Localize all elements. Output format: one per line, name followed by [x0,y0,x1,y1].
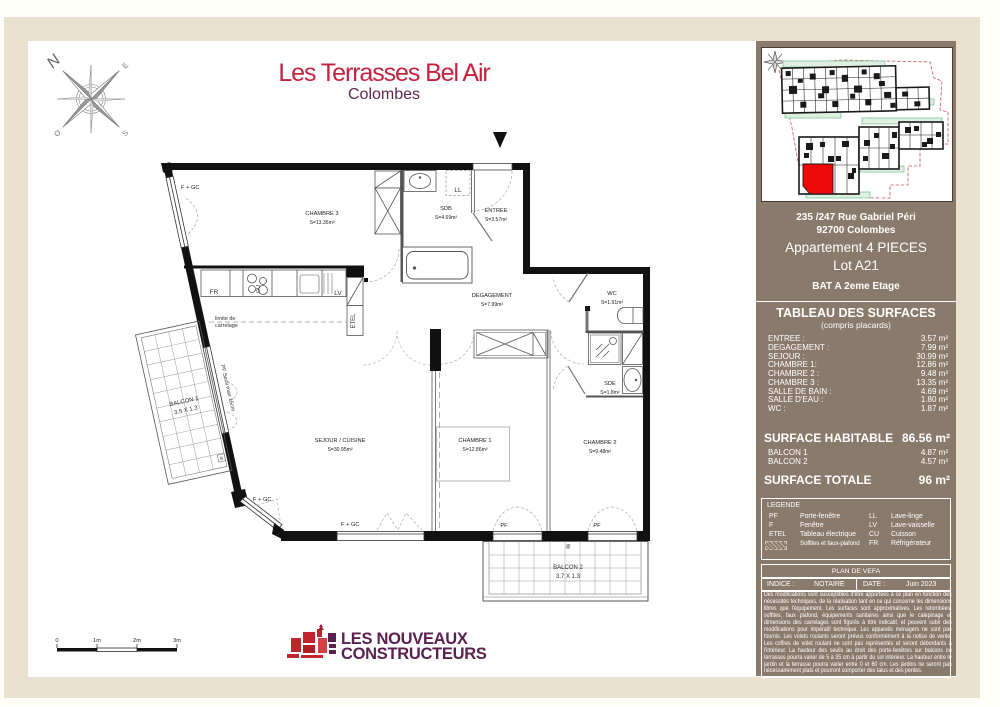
svg-text:S=1.8m²: S=1.8m² [600,390,620,396]
svg-text:DEGAGEMENT: DEGAGEMENT [472,293,513,299]
svg-text:1m: 1m [93,638,101,644]
svg-text:S=30.95m²: S=30.95m² [327,447,352,453]
svg-text:S=3.57m²: S=3.57m² [485,217,508,223]
svg-text:3m: 3m [173,638,181,644]
svg-text:PF: PF [593,523,601,529]
svg-text:S: S [120,128,130,138]
svg-text:3.7 X 1.3: 3.7 X 1.3 [556,574,581,580]
svg-text:S=9.48m²: S=9.48m² [589,449,612,455]
svg-text:@: @ [565,544,570,550]
svg-text:FR: FR [210,289,219,296]
svg-text:F + GC: F + GC [253,497,272,503]
svg-text:0: 0 [55,638,58,644]
svg-text:ETEL: ETEL [351,313,357,329]
svg-text:B: B [220,456,224,462]
svg-text:WC: WC [607,291,616,297]
svg-text:F + GC: F + GC [341,522,360,528]
svg-text:S=4.69m²: S=4.69m² [435,215,458,221]
svg-text:OU: OU [256,285,262,293]
svg-text:BALCON 2: BALCON 2 [553,565,583,571]
svg-text:N: N [44,51,65,72]
svg-text:SEJOUR / CUISINE: SEJOUR / CUISINE [315,438,366,444]
svg-text:O: O [52,128,63,139]
svg-text:PF: PF [500,523,508,529]
svg-text:carrelage: carrelage [215,323,238,329]
svg-text:F + GC: F + GC [181,185,200,191]
svg-text:LV: LV [334,290,342,297]
svg-text:ENTREE: ENTREE [484,208,507,214]
svg-text:limite de: limite de [215,316,235,322]
svg-text:2m: 2m [133,638,141,644]
svg-text:E: E [120,60,130,70]
svg-text:SDB: SDB [440,206,452,212]
svg-text:S=1.91m²: S=1.91m² [601,300,624,306]
svg-text:CHAMBRE 1: CHAMBRE 1 [458,438,491,444]
svg-text:3.5 X 1.3: 3.5 X 1.3 [174,405,199,416]
svg-text:LL: LL [454,187,462,194]
svg-text:CHAMBRE 3: CHAMBRE 3 [305,211,338,217]
svg-text:SDE: SDE [604,381,616,387]
svg-text:CONSTRUCTEURS: CONSTRUCTEURS [341,645,487,663]
svg-text:S=12.86m²: S=12.86m² [462,447,487,453]
svg-text:S=7.99m²: S=7.99m² [481,302,504,308]
svg-text:S=13.35m²: S=13.35m² [309,220,334,226]
svg-text:CHAMBRE 2: CHAMBRE 2 [583,440,616,446]
